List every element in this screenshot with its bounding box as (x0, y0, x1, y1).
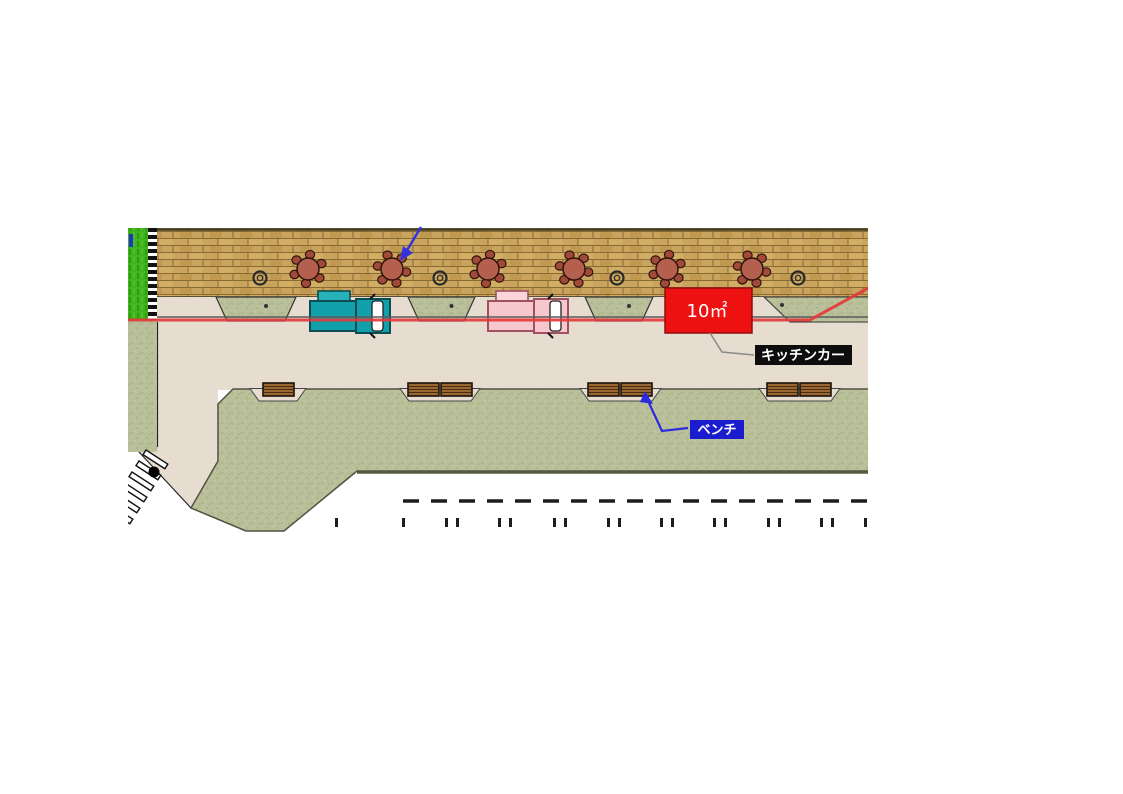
road-tick (335, 518, 338, 527)
road-tick (767, 518, 770, 527)
wood-deck (157, 228, 872, 297)
bench-icon (263, 383, 294, 396)
road-tick (498, 518, 501, 527)
road-tick (445, 518, 448, 527)
stairs-icon (108, 450, 168, 524)
bench-icon (441, 383, 472, 396)
stall-area-label: 10㎡ (687, 300, 728, 322)
road-tick (660, 518, 663, 527)
bench-icon (408, 383, 439, 396)
bench-label: ベンチ (697, 423, 736, 438)
site-plan-page: 10㎡ キッチンカー ベンチ (0, 0, 1123, 794)
road-tick (864, 518, 867, 527)
road-tick (724, 518, 727, 527)
legend-mark (129, 234, 133, 247)
road-tick (778, 518, 781, 527)
road-tick (831, 518, 834, 527)
road-tick (456, 518, 459, 527)
road-tick (820, 518, 823, 527)
road-tick (618, 518, 621, 527)
bench-icon (767, 383, 798, 396)
left-verge-strip (128, 320, 157, 452)
road-tick (607, 518, 610, 527)
windshield (550, 301, 561, 331)
food-truck-teal-icon (310, 291, 390, 338)
bench-icon (588, 383, 619, 396)
road-tick (671, 518, 674, 527)
bench-icon (621, 383, 652, 396)
road-tick (402, 518, 405, 527)
road-tick (553, 518, 556, 527)
windshield (372, 301, 383, 331)
road-tick (564, 518, 567, 527)
site-plan-drawing: 10㎡ キッチンカー ベンチ (0, 0, 1123, 794)
bench-icon (800, 383, 831, 396)
kitchen-car-label: キッチンカー (761, 348, 845, 364)
road-tick (509, 518, 512, 527)
bollard-dot (149, 467, 160, 478)
verge-dot (780, 303, 784, 307)
road-tick (713, 518, 716, 527)
plaza-green-area (191, 389, 872, 531)
road-tick-marks (335, 518, 867, 527)
food-truck-pink-icon (488, 291, 568, 338)
